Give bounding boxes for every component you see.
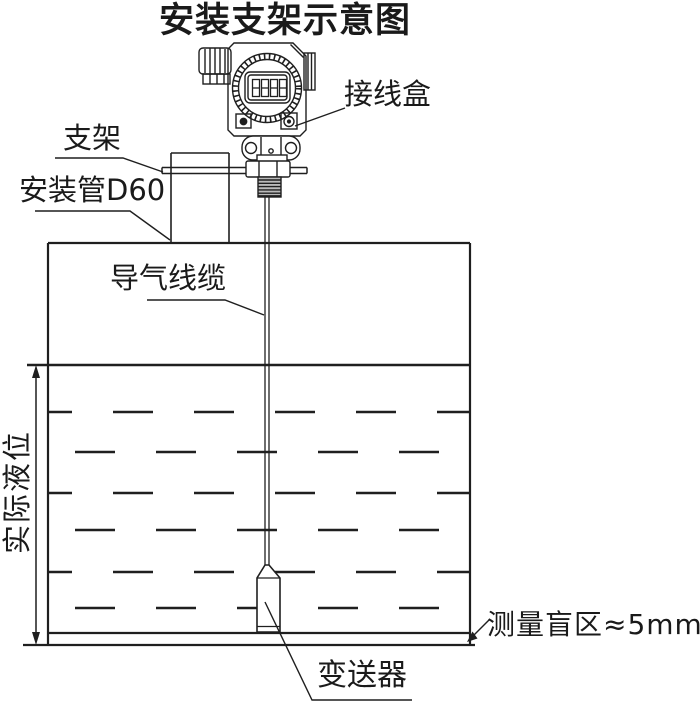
air-cable-label: 导气线缆 xyxy=(110,263,226,295)
transmitter-probe-label: 变送器 xyxy=(317,659,407,692)
diagram-title: 安装支架示意图 xyxy=(140,2,430,41)
actual-level-label: 实际液位 xyxy=(2,430,34,554)
left-bolt-icon xyxy=(240,118,246,124)
submersible-probe xyxy=(257,565,280,632)
dimension-arrow-down-icon xyxy=(32,632,40,645)
mounting-pipe-label: 安装管D60 xyxy=(19,175,165,207)
tank xyxy=(23,243,475,645)
cable-gland xyxy=(199,48,231,84)
hex-nut xyxy=(246,161,290,177)
schematic-page: 安装支架示意图 接线盒 支架 安装管D60 导气线缆 实际液位 变送器 测量盲区… xyxy=(0,0,700,708)
air-cable-leader xyxy=(147,300,264,315)
dimension-arrow-up-icon xyxy=(32,365,40,378)
head-adapter xyxy=(242,136,300,163)
bracket-leader xyxy=(55,158,163,172)
bracket-label: 支架 xyxy=(63,123,121,155)
mounting-pipe xyxy=(171,153,229,243)
threaded-stud xyxy=(258,177,281,197)
mounting-pipe-leader xyxy=(35,211,170,240)
blind-zone-label: 测量盲区≈5mm xyxy=(487,610,700,641)
junction-box-label: 接线盒 xyxy=(344,79,431,111)
junction-box-leader xyxy=(295,108,345,126)
air-tube-cable xyxy=(265,197,269,566)
